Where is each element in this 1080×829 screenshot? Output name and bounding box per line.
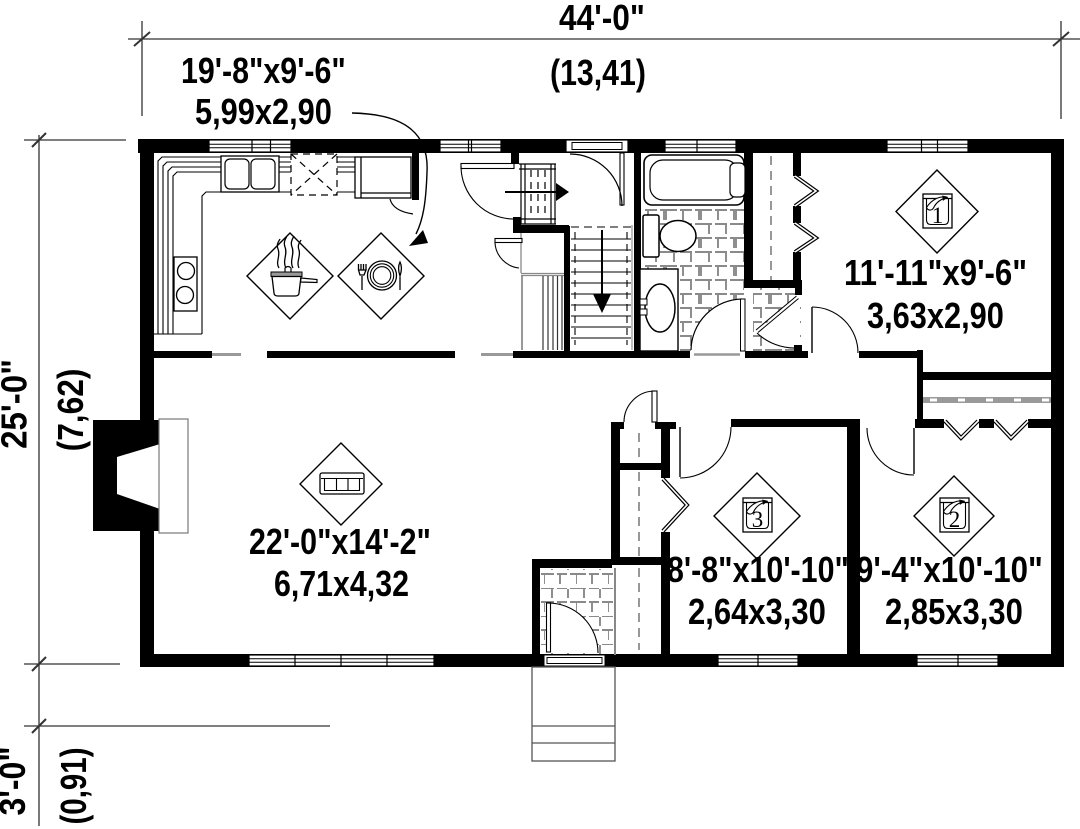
svg-text:6,71x4,32: 6,71x4,32 — [274, 565, 409, 605]
svg-text:(0,91): (0,91) — [53, 747, 93, 824]
svg-text:3'-0": 3'-0" — [0, 746, 33, 815]
svg-text:8'-8"x10'-10": 8'-8"x10'-10" — [667, 551, 849, 591]
svg-text:(13,41): (13,41) — [550, 54, 646, 94]
svg-text:25'-0": 25'-0" — [0, 359, 35, 449]
svg-text:3: 3 — [752, 507, 764, 532]
svg-text:44'-0": 44'-0" — [559, 0, 645, 38]
svg-text:2,64x3,30: 2,64x3,30 — [688, 593, 826, 633]
svg-text:11'-11"x9'-6": 11'-11"x9'-6" — [844, 254, 1027, 294]
svg-text:(7,62): (7,62) — [51, 369, 91, 452]
svg-text:1: 1 — [932, 203, 944, 228]
svg-text:22'-0"x14'-2": 22'-0"x14'-2" — [249, 523, 431, 563]
svg-text:3,63x2,90: 3,63x2,90 — [867, 297, 1004, 337]
svg-text:19'-8"x9'-6": 19'-8"x9'-6" — [181, 52, 346, 92]
svg-text:5,99x2,90: 5,99x2,90 — [195, 93, 332, 133]
svg-text:2: 2 — [949, 507, 961, 532]
svg-text:2,85x3,30: 2,85x3,30 — [885, 593, 1023, 633]
svg-text:9'-4"x10'-10": 9'-4"x10'-10" — [856, 550, 1043, 591]
